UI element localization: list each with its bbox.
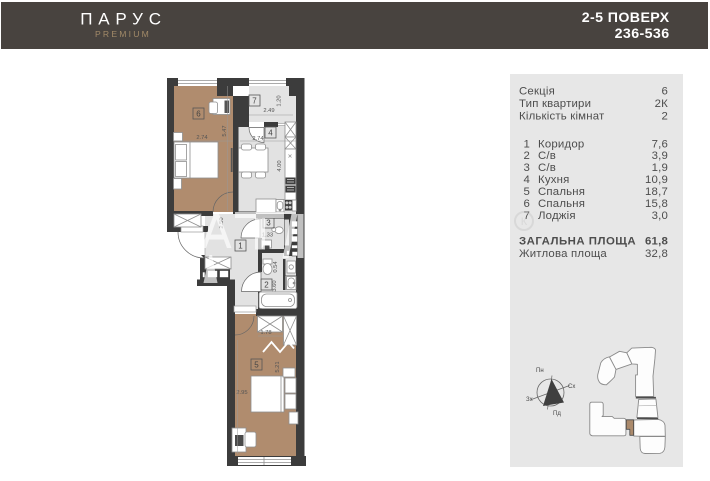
svg-text:15,8: 15,8 <box>645 198 668 210</box>
svg-text:PREMIUM: PREMIUM <box>95 29 151 39</box>
svg-text:2К: 2К <box>655 98 669 110</box>
svg-text:3,9: 3,9 <box>652 150 668 162</box>
svg-text:2.95: 2.95 <box>236 390 247 396</box>
svg-text:К: К <box>521 216 528 228</box>
svg-text:1: 1 <box>238 242 243 251</box>
svg-text:236-536: 236-536 <box>615 26 670 42</box>
svg-text:Секція: Секція <box>519 86 555 98</box>
svg-text:Коридор: Коридор <box>538 139 584 151</box>
svg-text:61,8: 61,8 <box>645 236 668 248</box>
svg-text:4: 4 <box>268 129 273 138</box>
svg-text:2: 2 <box>523 150 530 162</box>
svg-text:10,9: 10,9 <box>645 174 668 186</box>
svg-text:Пн: Пн <box>536 368 544 374</box>
svg-text:5.21: 5.21 <box>275 361 281 372</box>
svg-text:Кількість кімнат: Кількість кімнат <box>519 111 605 123</box>
svg-text:Зх: Зх <box>526 397 533 403</box>
svg-text:1.20: 1.20 <box>277 95 283 106</box>
svg-text:Сх: Сх <box>568 384 575 390</box>
svg-text:2.74: 2.74 <box>196 135 208 141</box>
svg-text:Тип квартири: Тип квартири <box>519 98 591 110</box>
svg-text:3: 3 <box>523 162 530 174</box>
svg-text:Лоджія: Лоджія <box>538 210 576 222</box>
svg-text:7,6: 7,6 <box>652 139 668 151</box>
svg-text:0.54: 0.54 <box>273 261 279 273</box>
svg-text:С/в: С/в <box>538 150 556 162</box>
svg-text:3,0: 3,0 <box>652 210 668 222</box>
svg-text:4: 4 <box>523 174 530 186</box>
svg-text:3.60: 3.60 <box>272 280 278 291</box>
svg-text:5.47: 5.47 <box>222 125 228 136</box>
svg-text:32,8: 32,8 <box>645 248 668 260</box>
svg-text:Кухня: Кухня <box>538 174 570 186</box>
svg-text:1.78: 1.78 <box>260 330 271 336</box>
svg-text:4.00: 4.00 <box>277 160 283 171</box>
svg-text:1,9: 1,9 <box>652 162 668 174</box>
svg-text:ПАРУС: ПАРУС <box>80 10 167 29</box>
svg-text:2.49: 2.49 <box>263 108 274 114</box>
svg-text:7: 7 <box>252 97 257 106</box>
svg-text:5: 5 <box>254 361 259 370</box>
svg-text:3: 3 <box>266 219 271 228</box>
svg-text:5: 5 <box>523 186 530 198</box>
svg-text:6: 6 <box>196 110 201 119</box>
svg-text:6: 6 <box>523 198 530 210</box>
svg-text:2-5 ПОВЕРХ: 2-5 ПОВЕРХ <box>582 10 670 26</box>
svg-text:6: 6 <box>661 86 668 98</box>
svg-text:18,7: 18,7 <box>645 186 668 198</box>
svg-text:1: 1 <box>523 139 530 151</box>
svg-text:Пд: Пд <box>553 411 561 417</box>
svg-text:Житлова площа: Житлова площа <box>519 248 607 260</box>
svg-text:2: 2 <box>264 281 269 290</box>
svg-text:2: 2 <box>661 111 668 123</box>
svg-text:С/в: С/в <box>538 162 556 174</box>
svg-text:Спальня: Спальня <box>538 186 585 198</box>
svg-text:ЗАГАЛЬНА ПЛОЩА: ЗАГАЛЬНА ПЛОЩА <box>519 236 636 248</box>
svg-text:Спальня: Спальня <box>538 198 585 210</box>
